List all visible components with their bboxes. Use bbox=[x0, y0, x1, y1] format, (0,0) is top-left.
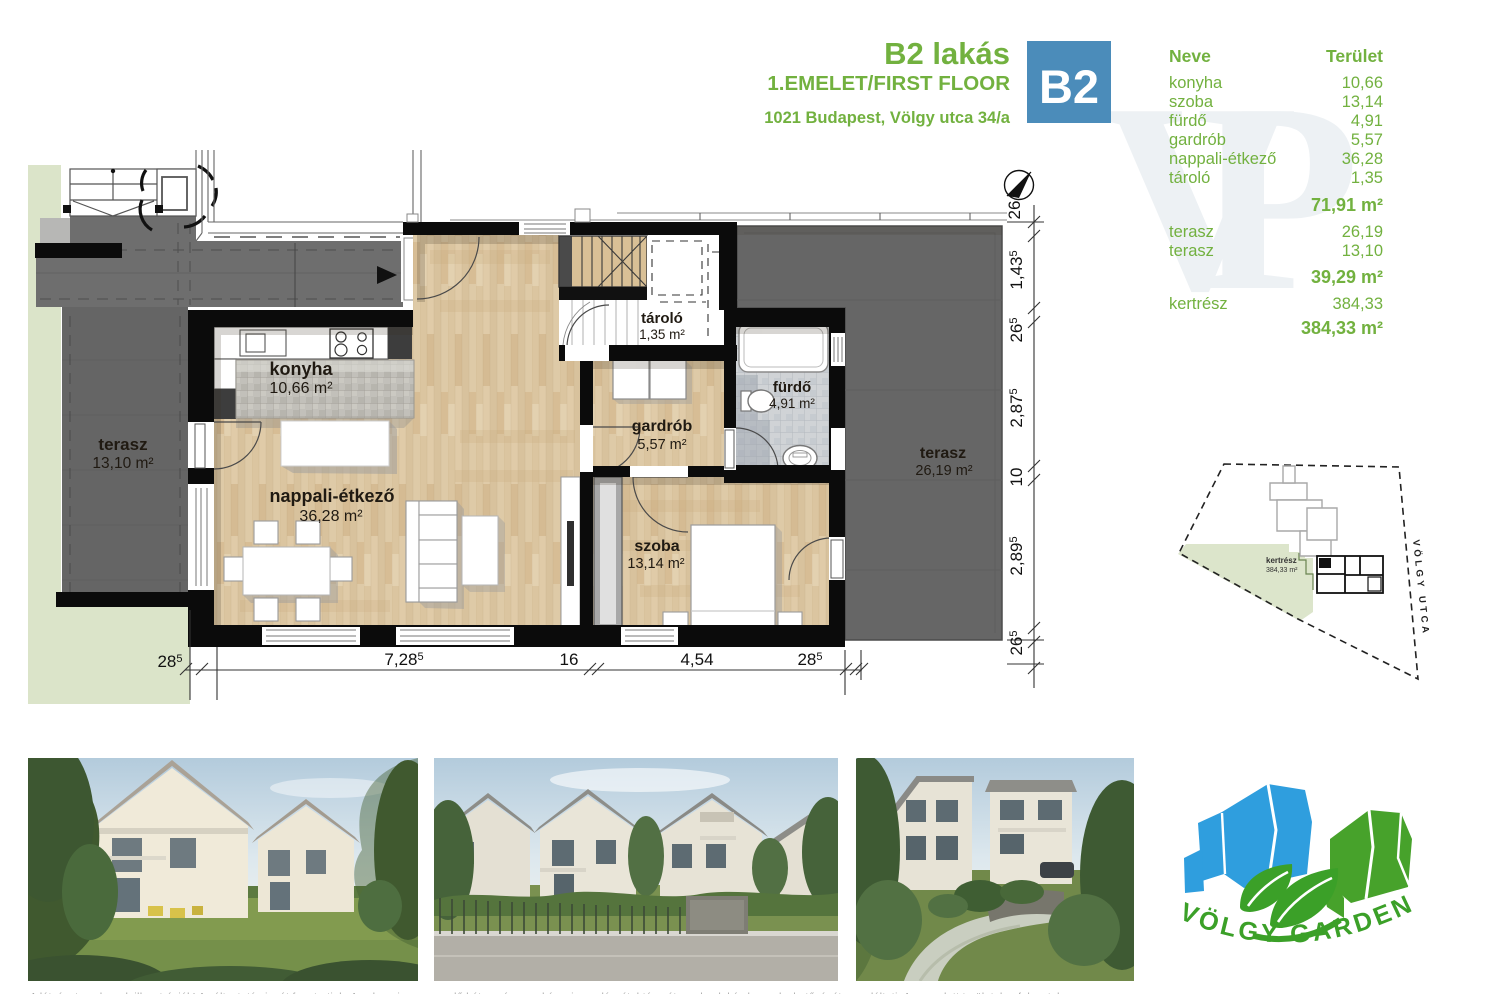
svg-text:B2: B2 bbox=[1039, 60, 1099, 113]
svg-text:nappali-étkező: nappali-étkező bbox=[269, 486, 394, 506]
svg-text:gardrób: gardrób bbox=[1169, 131, 1226, 149]
svg-text:4,91 m²: 4,91 m² bbox=[769, 396, 815, 411]
svg-text:4,54: 4,54 bbox=[680, 650, 713, 669]
svg-text:26,19 m²: 26,19 m² bbox=[915, 463, 972, 479]
svg-text:szoba: szoba bbox=[1169, 93, 1214, 111]
svg-text:10: 10 bbox=[1007, 468, 1026, 487]
svg-text:2,895: 2,895 bbox=[1007, 536, 1026, 575]
svg-text:1.EMELET/FIRST FLOOR: 1.EMELET/FIRST FLOOR bbox=[767, 72, 1010, 95]
svg-text:Terület: Terület bbox=[1326, 46, 1383, 66]
svg-text:tároló: tároló bbox=[641, 310, 683, 327]
svg-text:16: 16 bbox=[560, 650, 579, 669]
svg-text:terasz: terasz bbox=[98, 435, 147, 454]
svg-text:4,91: 4,91 bbox=[1351, 112, 1383, 130]
svg-text:konyha: konyha bbox=[269, 359, 333, 379]
svg-text:10,66: 10,66 bbox=[1342, 74, 1383, 92]
svg-text:36,28: 36,28 bbox=[1342, 150, 1383, 168]
svg-text:384,33 m²: 384,33 m² bbox=[1266, 567, 1298, 574]
svg-text:5,57 m²: 5,57 m² bbox=[637, 437, 686, 453]
svg-text:terasz: terasz bbox=[1169, 223, 1214, 241]
svg-text:fürdő: fürdő bbox=[1169, 112, 1207, 130]
svg-text:71,91 m²: 71,91 m² bbox=[1311, 195, 1383, 215]
svg-text:13,10 m²: 13,10 m² bbox=[92, 455, 153, 472]
svg-text:B2 lakás: B2 lakás bbox=[884, 36, 1010, 71]
svg-text:39,29 m²: 39,29 m² bbox=[1311, 267, 1383, 287]
svg-text:1,435: 1,435 bbox=[1007, 250, 1026, 289]
svg-text:13,14 m²: 13,14 m² bbox=[627, 556, 684, 572]
svg-text:36,28 m²: 36,28 m² bbox=[299, 508, 363, 525]
svg-text:285: 285 bbox=[797, 650, 822, 669]
svg-text:1,35 m²: 1,35 m² bbox=[639, 327, 685, 342]
svg-text:26,19: 26,19 bbox=[1342, 223, 1383, 241]
svg-text:nappali-étkező: nappali-étkező bbox=[1169, 150, 1276, 168]
svg-text:1,35: 1,35 bbox=[1351, 169, 1383, 187]
svg-text:konyha: konyha bbox=[1169, 74, 1223, 92]
svg-text:1021 Budapest, Völgy utca 34/a: 1021 Budapest, Völgy utca 34/a bbox=[764, 109, 1011, 127]
svg-text:szoba: szoba bbox=[634, 538, 679, 555]
svg-text:265: 265 bbox=[1007, 630, 1026, 655]
svg-text:terasz: terasz bbox=[920, 445, 966, 462]
svg-text:384,33 m²: 384,33 m² bbox=[1301, 318, 1383, 338]
svg-text:2,875: 2,875 bbox=[1007, 388, 1026, 427]
svg-text:fürdő: fürdő bbox=[773, 379, 811, 396]
svg-text:5,57: 5,57 bbox=[1351, 131, 1383, 149]
svg-text:terasz: terasz bbox=[1169, 242, 1214, 260]
svg-text:265: 265 bbox=[1007, 317, 1026, 342]
svg-text:7,285: 7,285 bbox=[384, 650, 423, 669]
svg-text:Neve: Neve bbox=[1169, 46, 1211, 66]
svg-text:tároló: tároló bbox=[1169, 169, 1210, 187]
svg-text:13,10: 13,10 bbox=[1342, 242, 1383, 260]
svg-text:kertrész: kertrész bbox=[1266, 556, 1297, 565]
svg-text:384,33: 384,33 bbox=[1333, 295, 1383, 313]
svg-text:gardrób: gardrób bbox=[632, 418, 693, 435]
svg-text:kertrész: kertrész bbox=[1169, 295, 1228, 313]
svg-text:26: 26 bbox=[1005, 201, 1024, 220]
svg-text:13,14: 13,14 bbox=[1342, 93, 1383, 111]
svg-text:10,66 m²: 10,66 m² bbox=[269, 380, 333, 397]
